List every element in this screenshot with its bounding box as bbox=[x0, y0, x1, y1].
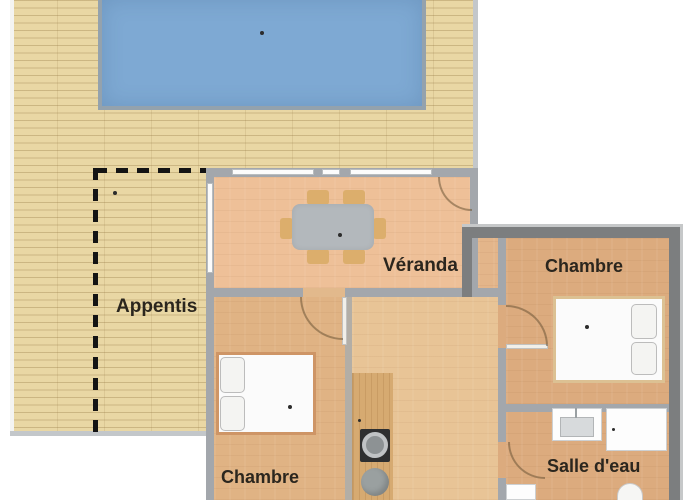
appentis-marker-dot bbox=[113, 191, 117, 195]
dining-chair bbox=[307, 249, 329, 264]
room-label-appentis: Appentis bbox=[116, 296, 197, 317]
deck-edge-bottom bbox=[10, 431, 206, 436]
door-opening-chambre-nord bbox=[498, 305, 506, 348]
pillow bbox=[220, 396, 245, 431]
pillow bbox=[631, 304, 657, 339]
room-label-salle-deau: Salle d'eau bbox=[547, 456, 640, 477]
dining-chair bbox=[307, 190, 329, 205]
door-opening-salle-deau bbox=[498, 442, 506, 478]
swimming-pool bbox=[98, 0, 426, 110]
room-label-veranda: Véranda bbox=[383, 255, 458, 276]
veranda-window-north-2 bbox=[322, 169, 340, 175]
pool-marker-dot bbox=[260, 31, 264, 35]
appentis-boundary-top bbox=[95, 168, 213, 173]
wall-hall-east-1 bbox=[498, 238, 506, 305]
veranda-window-north-3 bbox=[350, 169, 432, 175]
sink-basin bbox=[560, 417, 594, 437]
veranda-window-west bbox=[207, 183, 213, 273]
door-opening-chambre-sud bbox=[303, 288, 345, 297]
stove-burner-icon bbox=[362, 432, 388, 458]
hall-marker-dot bbox=[358, 419, 361, 422]
shower-marker-dot bbox=[612, 428, 615, 431]
room-label-chambre-nord: Chambre bbox=[545, 256, 623, 277]
room-label-chambre-sud: Chambre bbox=[221, 467, 299, 488]
dining-chair bbox=[343, 249, 365, 264]
deck-edge-left bbox=[10, 0, 14, 434]
dining-chair bbox=[343, 190, 365, 205]
wall-veranda-south-right bbox=[345, 288, 506, 297]
wing-wall-outer-right bbox=[680, 224, 683, 500]
dining-chair bbox=[373, 218, 386, 239]
appentis-boundary-left bbox=[93, 168, 98, 434]
wing-wall-top bbox=[462, 227, 680, 238]
shower-unit bbox=[606, 408, 667, 451]
veranda-marker-dot bbox=[338, 233, 342, 237]
shower-tray bbox=[506, 484, 536, 500]
wall-hall-east-2 bbox=[498, 348, 506, 442]
chambre-sud-marker-dot bbox=[288, 405, 292, 409]
wing-wall-left-stub bbox=[462, 238, 472, 297]
floor-plan: Appentis Véranda Chambre bbox=[0, 0, 700, 500]
deck-edge-right bbox=[473, 0, 478, 172]
pillow bbox=[220, 357, 245, 393]
round-sink bbox=[361, 468, 389, 496]
wall-veranda-south-left bbox=[206, 288, 303, 297]
chambre-nord-marker-dot bbox=[585, 325, 589, 329]
wing-wall-right bbox=[669, 238, 680, 500]
faucet-icon bbox=[575, 408, 577, 418]
dining-table bbox=[292, 204, 374, 250]
pillow bbox=[631, 342, 657, 375]
veranda-window-north-1 bbox=[232, 169, 314, 175]
wall-hall-east-3 bbox=[498, 478, 506, 500]
